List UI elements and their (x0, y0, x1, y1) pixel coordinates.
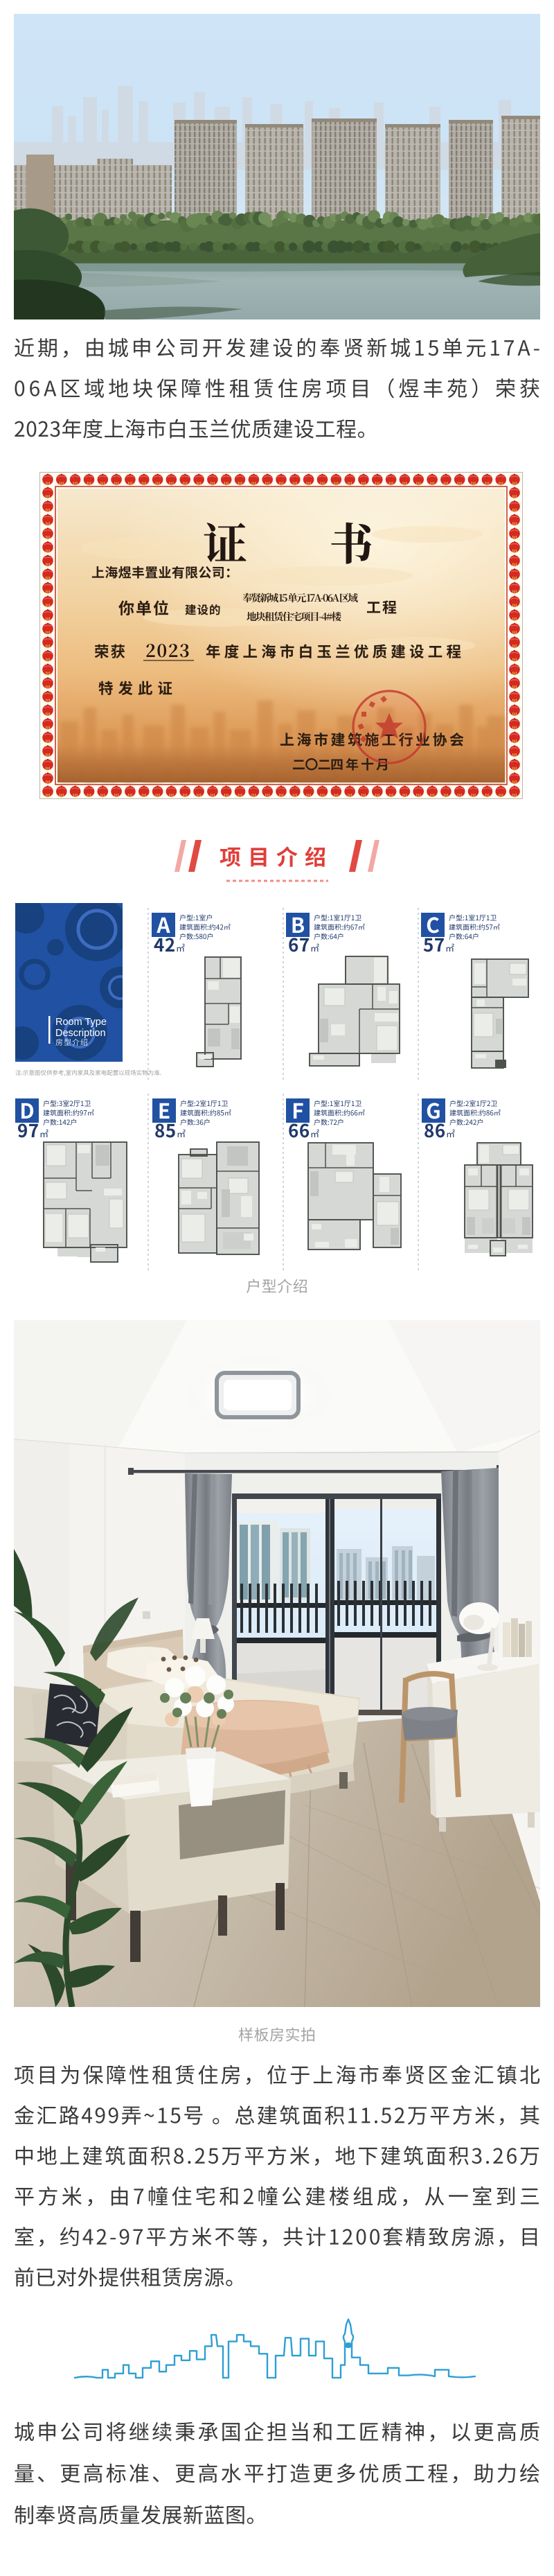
svg-text:Room Type: Room Type (55, 1017, 107, 1028)
svg-text:Description: Description (55, 1028, 106, 1039)
